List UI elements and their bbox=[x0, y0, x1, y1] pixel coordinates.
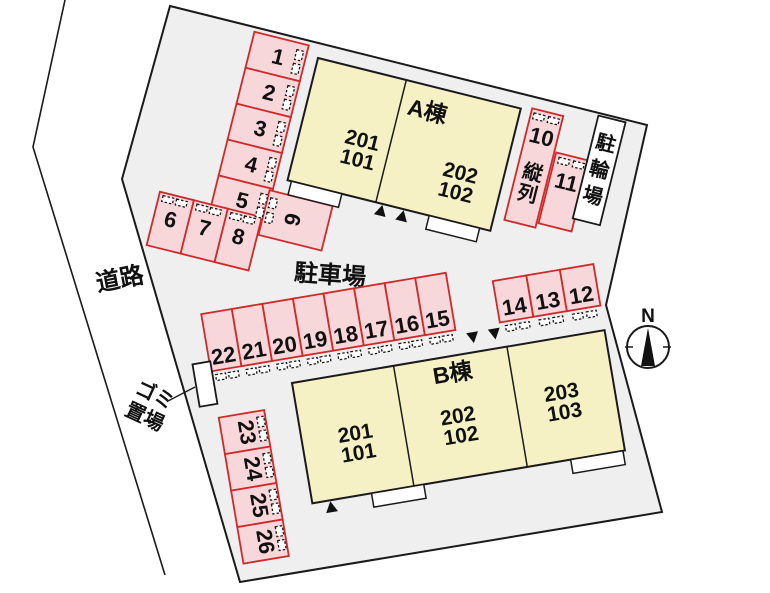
space-16-number: 16 bbox=[393, 310, 421, 339]
space-18-number: 18 bbox=[332, 320, 360, 349]
site-plan-page: 道路 駐車場 ゴミ 置場 1 2 3 4 5 6 7 8 9 bbox=[0, 0, 770, 588]
wheel-stop bbox=[273, 135, 282, 146]
space-13-number: 13 bbox=[534, 286, 562, 315]
space-14-number: 14 bbox=[500, 292, 529, 321]
site-plan: 道路 駐車場 ゴミ 置場 1 2 3 4 5 6 7 8 9 bbox=[0, 0, 770, 588]
wheel-stop bbox=[268, 198, 277, 209]
wheel-stop bbox=[294, 50, 303, 61]
space-22-number: 22 bbox=[209, 341, 237, 370]
space-20-number: 20 bbox=[270, 331, 298, 360]
space-21-number: 21 bbox=[240, 336, 268, 365]
wheel-stop bbox=[259, 193, 268, 204]
wheel-stop bbox=[264, 171, 273, 182]
wheel-stop bbox=[291, 63, 300, 74]
wheel-stop bbox=[277, 121, 286, 132]
wheel-stop bbox=[282, 99, 291, 110]
north-label: N bbox=[641, 306, 655, 327]
wheel-stop bbox=[268, 157, 277, 168]
wheel-stop bbox=[265, 212, 274, 223]
space-19-number: 19 bbox=[301, 326, 329, 355]
parking-lot-label: 駐車場 bbox=[293, 259, 367, 292]
space-12-number: 12 bbox=[567, 281, 595, 310]
space-17-number: 17 bbox=[362, 315, 390, 344]
wheel-stop bbox=[255, 207, 264, 218]
wheel-stop bbox=[286, 86, 295, 97]
space-15-number: 15 bbox=[423, 305, 451, 334]
